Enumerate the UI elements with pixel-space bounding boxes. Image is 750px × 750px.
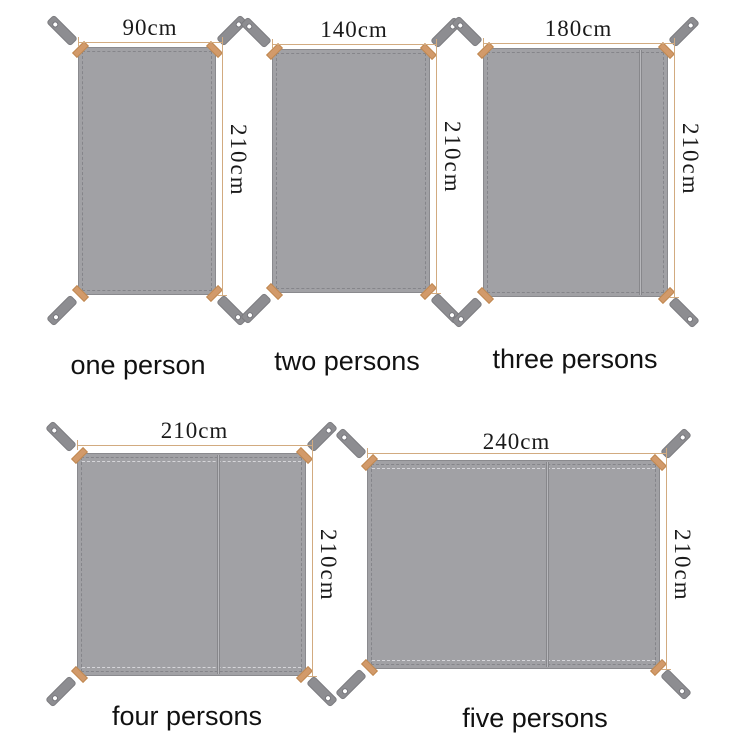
capacity-label: two persons: [227, 346, 467, 376]
panel-seam: [546, 462, 549, 667]
corner-strap-bottom-left: [240, 293, 272, 325]
tarp-fabric: [483, 48, 668, 297]
strap-hole: [324, 426, 332, 434]
height-dimension-label: 210cm: [667, 515, 695, 615]
height-dimension-label: 210cm: [437, 107, 465, 207]
capacity-label: three persons: [455, 344, 695, 374]
stitch-line: [82, 51, 212, 291]
strap-hole: [51, 313, 59, 321]
tarp-size-chart: 90cm 210cm one person 140cm 210cm two pe…: [0, 0, 750, 750]
panel-seam: [639, 50, 642, 295]
width-dimension-label: 180cm: [483, 16, 674, 42]
tarp-fabric: [77, 453, 306, 676]
width-dimension-line: [272, 44, 436, 45]
width-dimension-label: 210cm: [77, 418, 312, 444]
panel-seam: [217, 455, 220, 674]
corner-strap-bottom-left: [335, 669, 367, 701]
corner-strap-bottom-right: [668, 297, 700, 329]
corner-strap-bottom-right: [306, 676, 338, 708]
strap-hole: [51, 20, 59, 28]
strap-hole: [50, 694, 58, 702]
stitch-line: [487, 52, 664, 293]
width-dimension-label: 140cm: [272, 17, 436, 43]
capacity-label: four persons: [67, 701, 307, 731]
stitch-line: [81, 457, 302, 672]
strap-hole: [456, 21, 464, 29]
strap-hole: [678, 687, 686, 695]
corner-strap-top-left: [335, 428, 367, 460]
capacity-label: five persons: [415, 703, 655, 733]
tarp-fabric: [367, 460, 660, 669]
width-dimension-line: [78, 42, 222, 43]
width-dimension-line: [483, 43, 674, 44]
capacity-label: one person: [18, 350, 258, 380]
strap-hole: [686, 315, 694, 323]
strap-hole: [245, 311, 253, 319]
height-dimension-label: 210cm: [313, 515, 341, 615]
width-dimension-label: 240cm: [367, 429, 666, 455]
height-dimension-label: 210cm: [675, 109, 703, 209]
strap-hole: [340, 687, 348, 695]
tarp-fabric: [272, 49, 430, 293]
strap-hole: [245, 22, 253, 30]
width-dimension-label: 90cm: [78, 15, 222, 41]
strap-hole: [678, 433, 686, 441]
tarp-fabric: [78, 47, 216, 295]
strap-hole: [50, 426, 58, 434]
corner-strap-top-left: [46, 15, 78, 47]
corner-strap-top-left: [240, 17, 272, 49]
dimension-tick: [307, 676, 317, 677]
stitch-line: [372, 468, 655, 469]
stitch-line: [371, 464, 656, 665]
dimension-tick: [431, 293, 441, 294]
strap-hole: [340, 433, 348, 441]
stitch-line: [82, 667, 301, 668]
strap-hole: [324, 694, 332, 702]
strap-hole: [686, 21, 694, 29]
dimension-tick: [669, 297, 679, 298]
stitch-line: [276, 53, 426, 289]
stitch-line: [82, 461, 301, 462]
corner-strap-bottom-right: [216, 295, 248, 327]
dimension-tick: [661, 669, 671, 670]
strap-hole: [456, 315, 464, 323]
corner-strap-top-left: [45, 421, 77, 453]
width-dimension-line: [77, 445, 312, 446]
height-dimension-label: 210cm: [223, 110, 251, 210]
dimension-tick: [217, 295, 227, 296]
corner-strap-bottom-left: [46, 295, 78, 327]
corner-strap-bottom-right: [660, 669, 692, 701]
corner-strap-top-left: [451, 16, 483, 48]
stitch-line: [372, 660, 655, 661]
